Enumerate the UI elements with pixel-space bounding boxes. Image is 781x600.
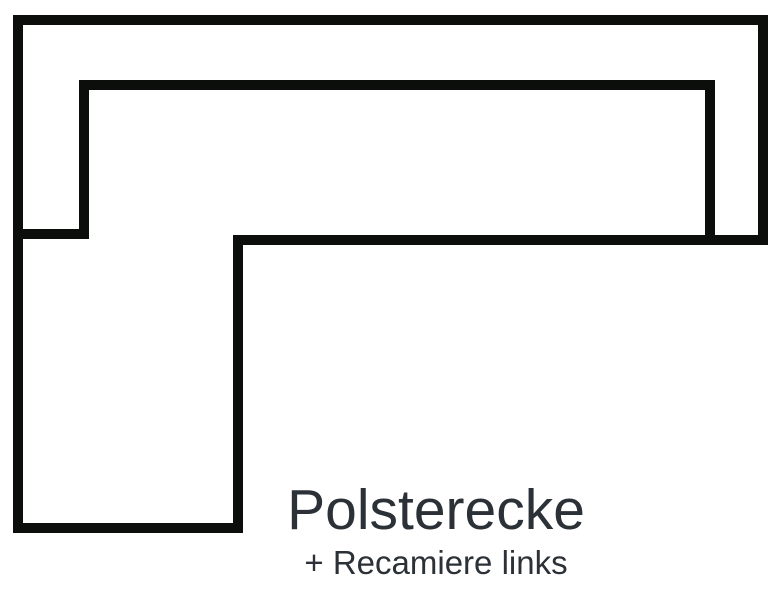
sofa-top-view-diagram [0, 0, 781, 600]
product-schematic: Polsterecke + Recamiere links [0, 0, 781, 600]
sofa-backrest-line [13, 85, 710, 240]
sofa-outer-outline [18, 20, 763, 528]
